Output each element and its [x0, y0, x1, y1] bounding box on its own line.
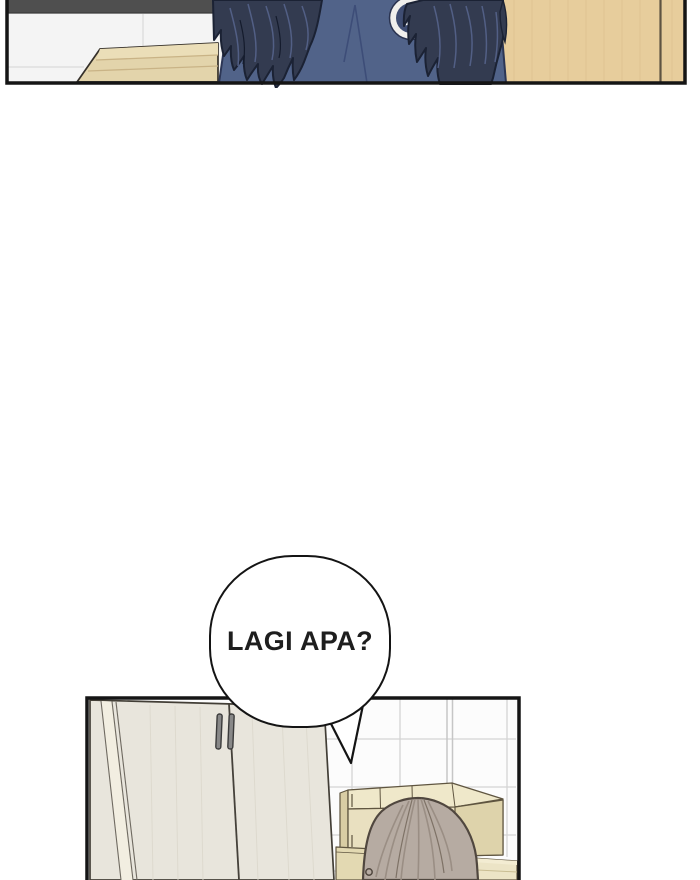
speech-bubble-text: LAGI APA?: [227, 626, 373, 657]
dark-haired-character: KI: [213, 0, 507, 88]
webtoon-page: KI: [0, 0, 700, 880]
panel-top: KI: [0, 0, 700, 88]
wardrobe-handle-right: [228, 714, 235, 749]
wardrobe-handle-left: [216, 714, 223, 749]
speech-bubble: LAGI APA?: [209, 555, 391, 728]
wooden-door: [478, 0, 684, 83]
